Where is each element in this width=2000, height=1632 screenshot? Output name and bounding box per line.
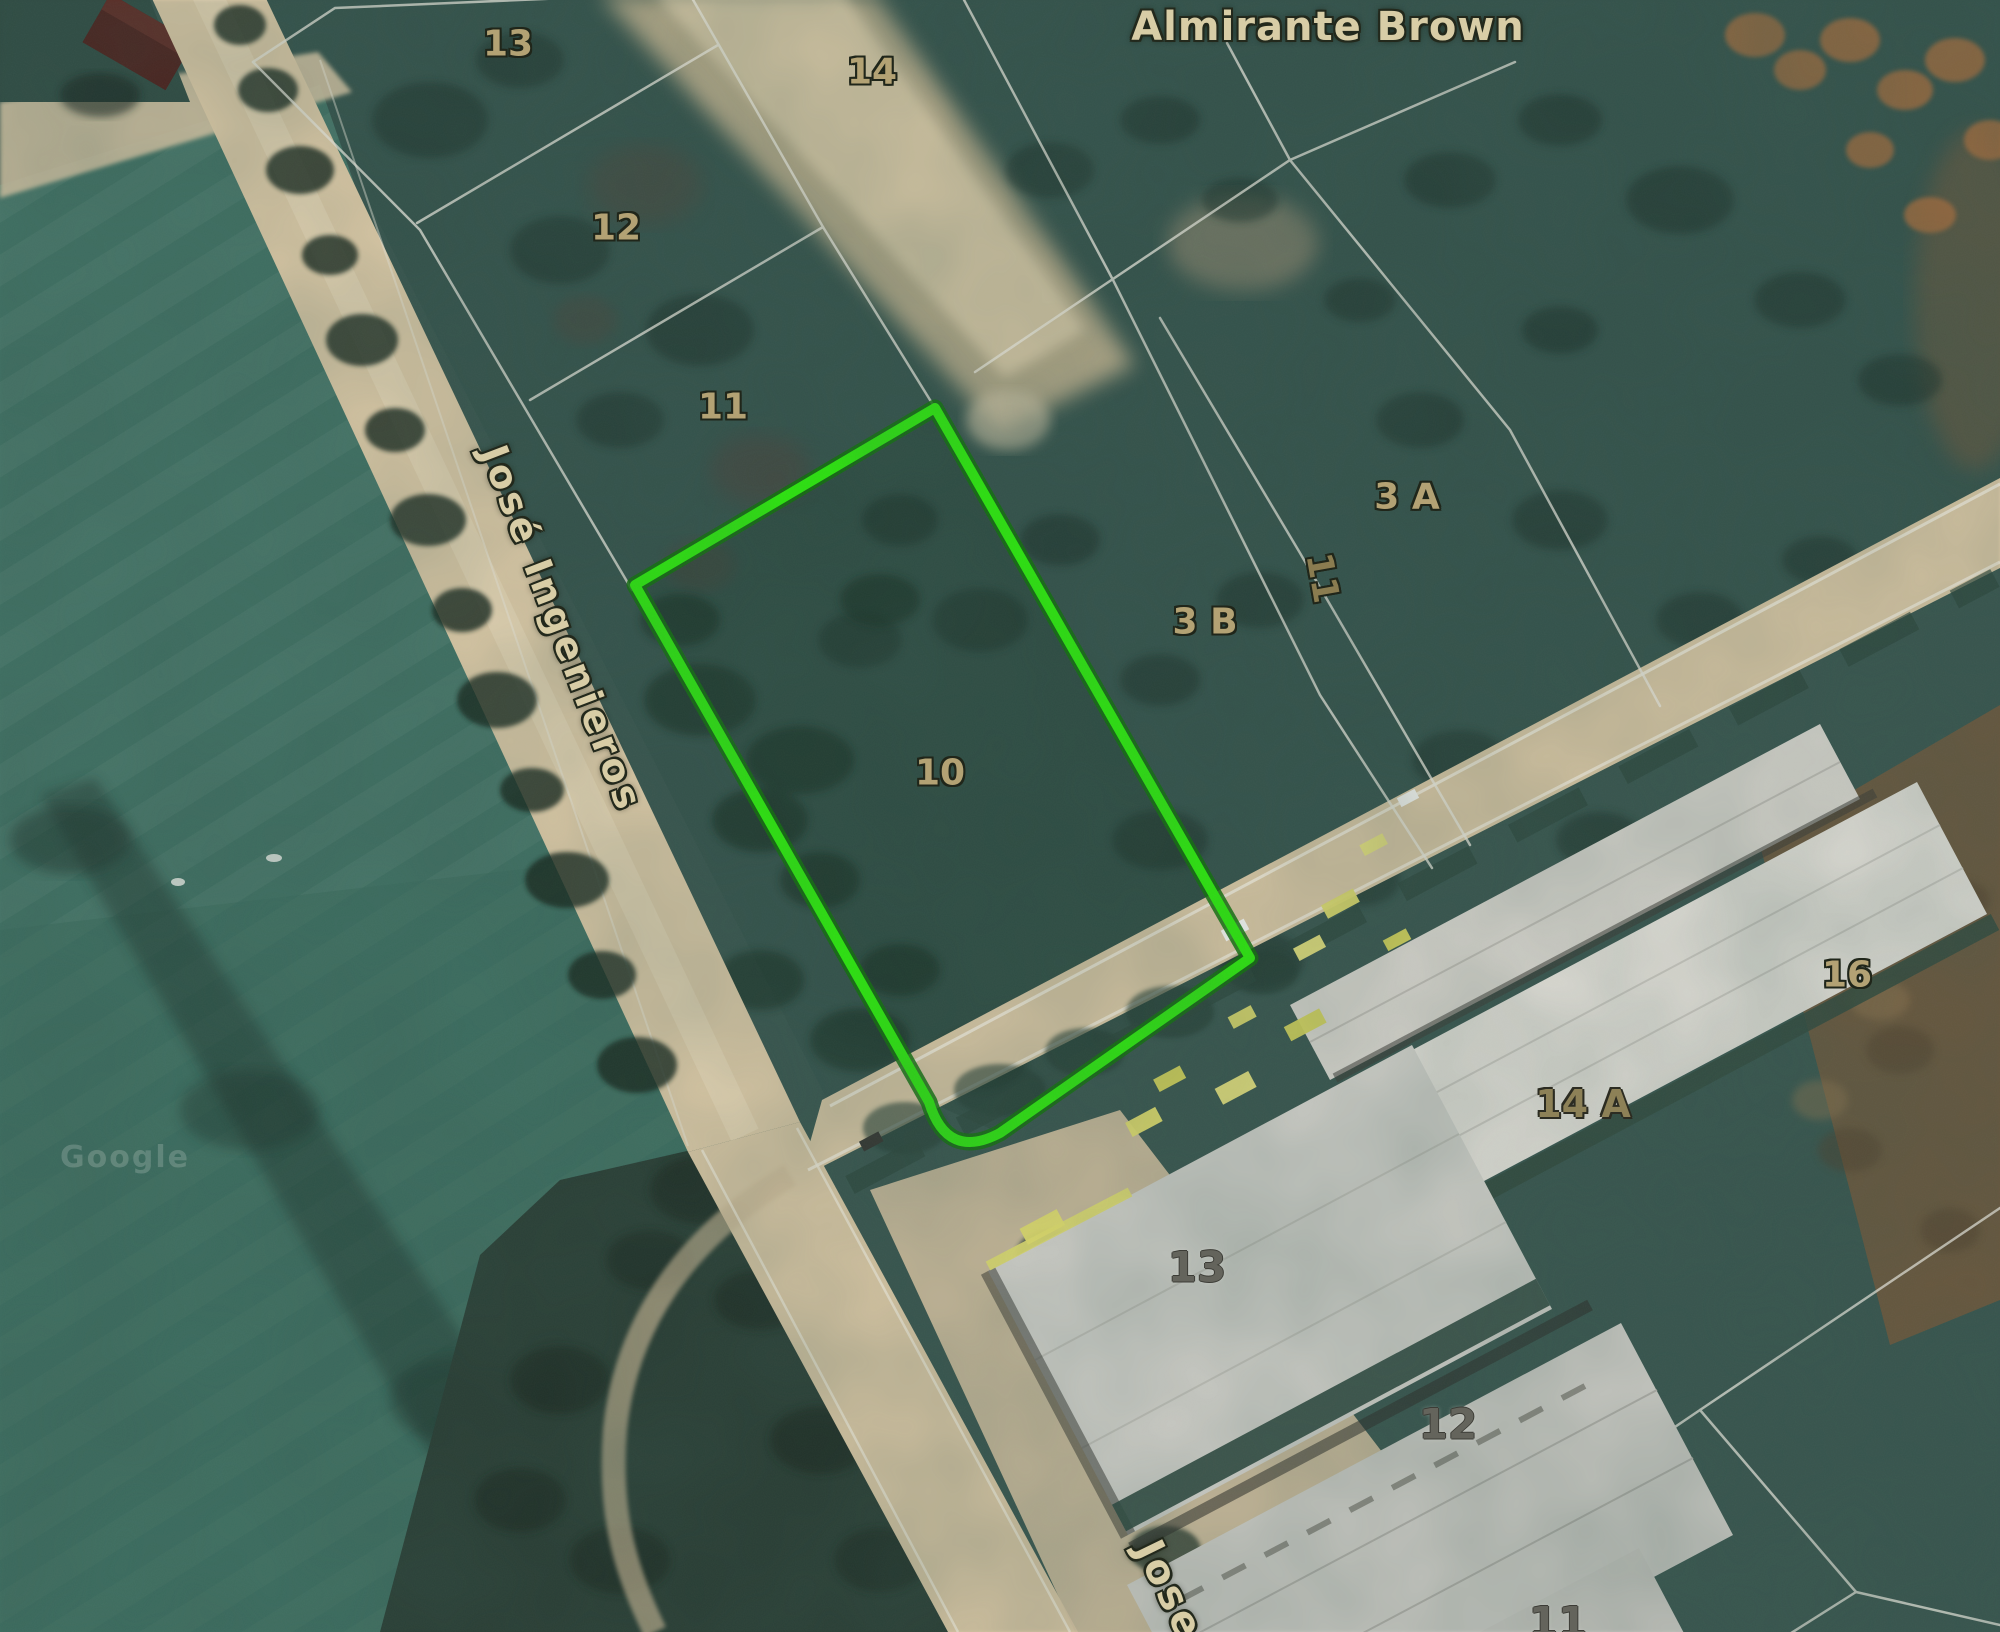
satellite-map[interactable]: Almirante Brown José Ingenieros Jose 13 … (0, 0, 2000, 1632)
satellite-imagery (0, 0, 2000, 1632)
